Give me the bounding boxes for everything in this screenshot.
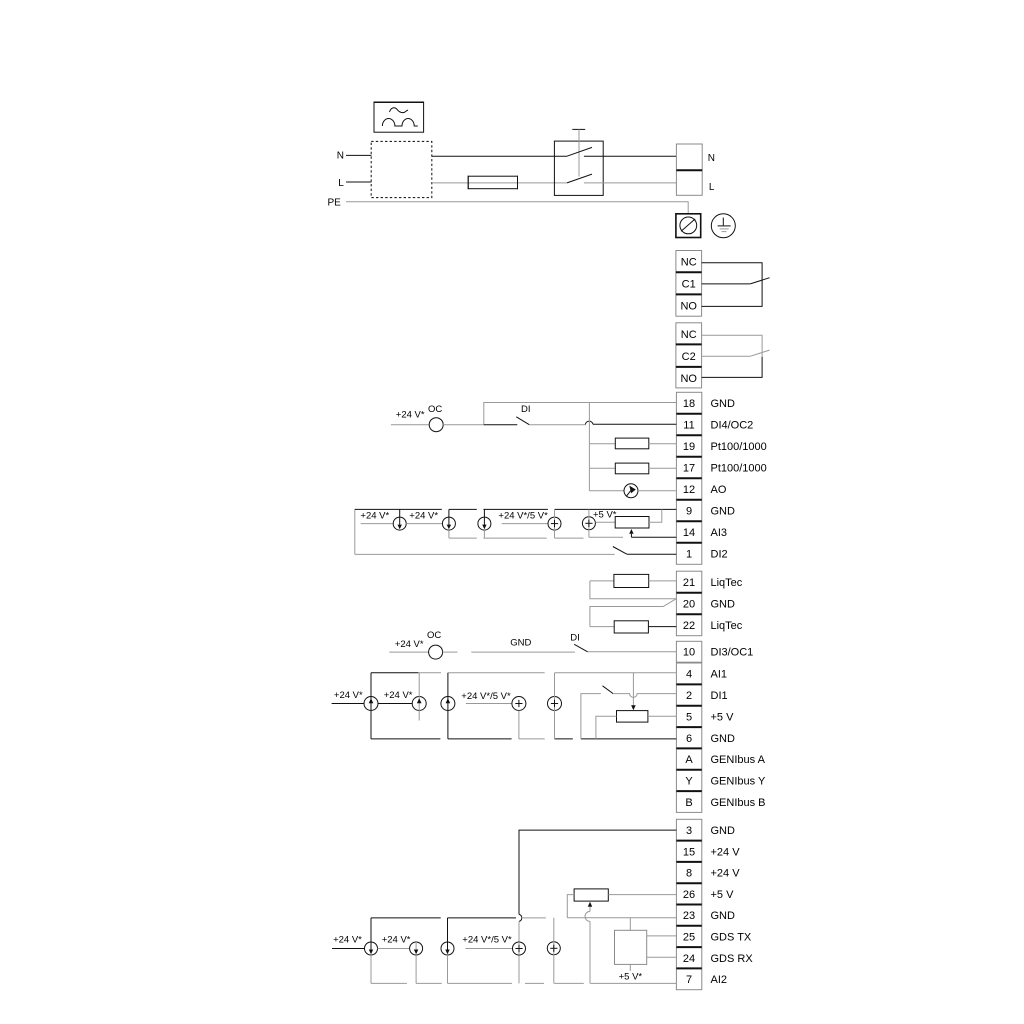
svg-text:GDS TX: GDS TX: [711, 932, 752, 944]
svg-text:DI3/OC1: DI3/OC1: [711, 647, 754, 659]
svg-text:+24 V*: +24 V*: [360, 511, 389, 522]
svg-text:OC: OC: [428, 404, 442, 415]
svg-text:12: 12: [683, 484, 695, 496]
svg-text:GND: GND: [711, 825, 736, 837]
svg-text:25: 25: [683, 932, 695, 944]
svg-text:A: A: [685, 754, 693, 766]
svg-text:Pt100/1000: Pt100/1000: [711, 463, 767, 475]
svg-text:NO: NO: [680, 301, 697, 313]
svg-text:DI2: DI2: [711, 549, 728, 561]
svg-text:+24 V*: +24 V*: [334, 690, 363, 701]
svg-text:9: 9: [686, 506, 692, 518]
svg-text:5: 5: [686, 711, 692, 723]
svg-text:3: 3: [686, 825, 692, 837]
svg-text:GND: GND: [711, 599, 736, 611]
svg-text:8: 8: [686, 868, 692, 880]
svg-text:2: 2: [686, 690, 692, 702]
svg-text:LiqTec: LiqTec: [711, 620, 743, 632]
svg-text:GDS RX: GDS RX: [711, 953, 754, 965]
svg-text:17: 17: [683, 463, 695, 475]
svg-text:Y: Y: [685, 776, 693, 788]
svg-text:DI4/OC2: DI4/OC2: [711, 420, 754, 432]
svg-text:21: 21: [683, 577, 695, 589]
svg-text:20: 20: [683, 599, 695, 611]
svg-text:L: L: [338, 178, 344, 189]
svg-text:18: 18: [683, 398, 695, 410]
svg-text:PE: PE: [328, 198, 342, 209]
svg-text:14: 14: [683, 527, 695, 539]
svg-text:+5 V*: +5 V*: [619, 972, 643, 983]
svg-text:NC: NC: [681, 329, 697, 341]
svg-text:NC: NC: [681, 257, 697, 269]
svg-text:+24 V: +24 V: [711, 846, 741, 858]
svg-text:26: 26: [683, 889, 695, 901]
svg-text:11: 11: [683, 420, 694, 432]
svg-text:NO: NO: [680, 373, 697, 385]
svg-text:AO: AO: [711, 484, 727, 496]
svg-text:+24 V*: +24 V*: [395, 639, 424, 650]
svg-text:C1: C1: [682, 279, 696, 291]
svg-text:22: 22: [683, 620, 695, 632]
svg-text:LiqTec: LiqTec: [711, 577, 743, 589]
svg-text:GND: GND: [711, 733, 736, 745]
svg-text:+24 V*: +24 V*: [333, 935, 362, 946]
svg-text:L: L: [709, 182, 715, 193]
svg-text:+24 V*: +24 V*: [396, 410, 425, 421]
svg-text:GND: GND: [711, 506, 736, 518]
svg-text:4: 4: [686, 669, 692, 681]
svg-text:1: 1: [686, 549, 692, 561]
svg-text:DI: DI: [570, 632, 580, 643]
svg-text:+24 V*: +24 V*: [384, 690, 413, 701]
svg-text:10: 10: [683, 647, 695, 659]
svg-text:7: 7: [686, 974, 692, 986]
svg-text:+5 V: +5 V: [711, 711, 735, 723]
svg-text:DI: DI: [521, 404, 531, 415]
svg-text:+24 V*: +24 V*: [409, 511, 438, 522]
svg-text:+5 V*: +5 V*: [593, 509, 617, 520]
svg-text:GENIbus A: GENIbus A: [711, 754, 766, 766]
svg-text:AI2: AI2: [711, 974, 728, 986]
svg-text:+5 V: +5 V: [711, 889, 735, 901]
svg-text:23: 23: [683, 910, 695, 922]
svg-text:GENIbus Y: GENIbus Y: [711, 776, 766, 788]
svg-text:GND: GND: [510, 638, 531, 649]
svg-text:+24 V*/5 V*: +24 V*/5 V*: [462, 935, 512, 946]
svg-text:6: 6: [686, 733, 692, 745]
svg-text:24: 24: [683, 953, 695, 965]
svg-text:15: 15: [683, 846, 695, 858]
svg-text:+24 V: +24 V: [711, 868, 741, 880]
svg-text:N: N: [337, 151, 344, 162]
svg-text:+24 V*/5 V*: +24 V*/5 V*: [498, 511, 548, 522]
svg-text:+24 V*: +24 V*: [382, 935, 411, 946]
svg-text:N: N: [708, 153, 715, 164]
svg-text:AI3: AI3: [711, 527, 728, 539]
svg-text:AI1: AI1: [711, 669, 728, 681]
svg-text:GND: GND: [711, 910, 736, 922]
svg-text:19: 19: [683, 441, 695, 453]
svg-text:GND: GND: [711, 398, 736, 410]
svg-text:B: B: [685, 797, 692, 809]
svg-text:+24 V*/5 V*: +24 V*/5 V*: [461, 691, 511, 702]
svg-text:OC: OC: [427, 630, 441, 641]
svg-text:C2: C2: [682, 351, 696, 363]
svg-text:GENIbus B: GENIbus B: [711, 797, 766, 809]
svg-text:Pt100/1000: Pt100/1000: [711, 441, 767, 453]
svg-text:DI1: DI1: [711, 690, 728, 702]
